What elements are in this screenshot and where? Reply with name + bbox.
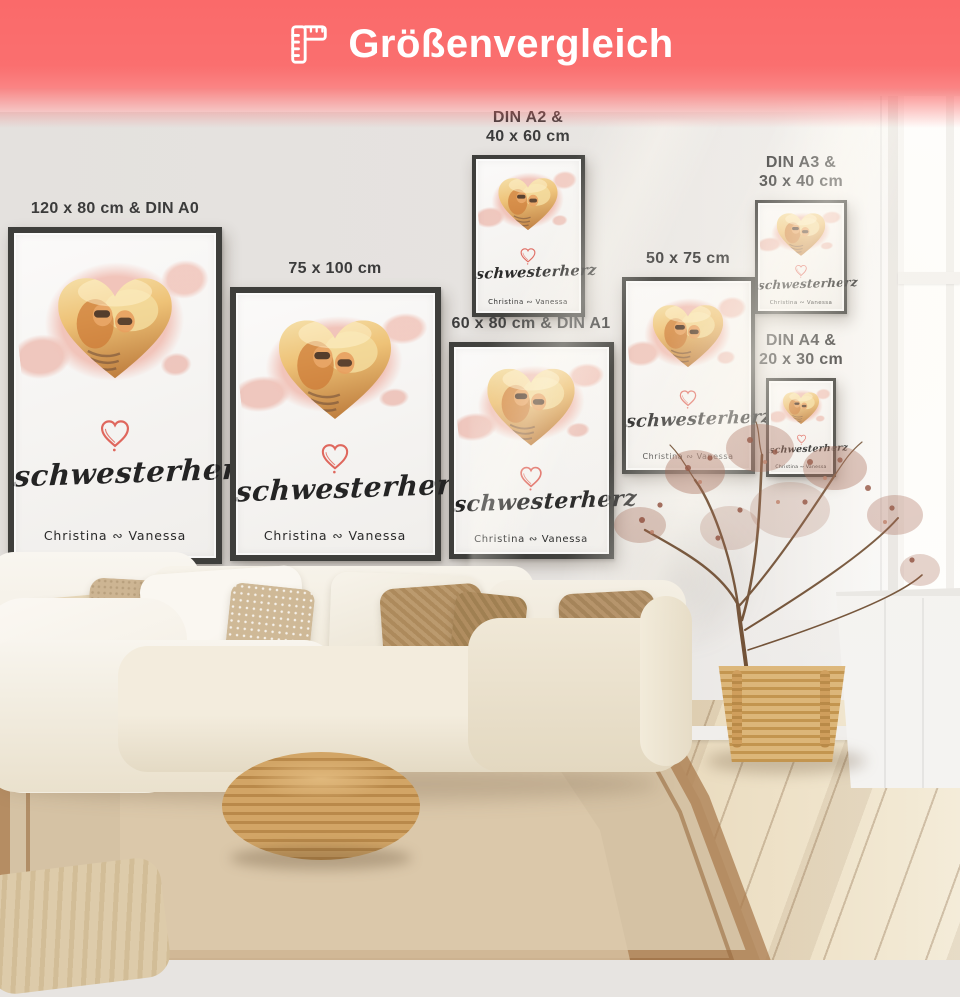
framed-poster: schwesterherz Christina ∾ Vanessa	[755, 200, 847, 314]
poster-group-din-a3: DIN A3 &30 x 40 cm	[746, 154, 856, 314]
heart-outline-icon	[626, 389, 751, 411]
room-photo: 120 x 80 cm & DIN A0	[0, 0, 960, 960]
poster-size-label: 60 x 80 cm & DIN A1	[452, 315, 611, 334]
framed-poster: schwesterherz Christina ∾ Vanessa	[230, 287, 441, 561]
poster-title-script: schwesterherz	[13, 452, 217, 493]
poster-size-label: 75 x 100 cm	[288, 260, 381, 279]
framed-poster: schwesterherz Christina ∾ Vanessa	[8, 227, 222, 564]
poster-photo-area	[762, 207, 839, 261]
heart-outline-icon	[14, 418, 216, 455]
poster-names: Christina ∾ Vanessa	[236, 528, 435, 543]
heart-photo	[274, 310, 396, 431]
ruler-icon	[286, 21, 332, 67]
poster-names: Christina ∾ Vanessa	[14, 528, 216, 543]
poster-names: Christina ∾ Vanessa	[758, 300, 844, 306]
poster-photo-area	[24, 246, 206, 409]
woven-pouf	[222, 752, 420, 860]
framed-poster: schwesterherz Christina ∾ Vanessa	[472, 155, 585, 317]
poster-group-din-a2: DIN A2 &40 x 60 cm	[458, 109, 598, 317]
heart-photo	[775, 210, 828, 260]
header-banner: Größenvergleich	[0, 0, 960, 88]
poster-title-script: schwesterherz	[234, 469, 435, 509]
heart-photo	[53, 254, 177, 404]
poster-size-label: DIN A4 &20 x 30 cm	[759, 332, 843, 370]
poster-size-label: 50 x 75 cm	[646, 250, 730, 269]
poster-title-script: schwesterherz	[453, 486, 610, 517]
poster-photo-area	[461, 355, 601, 459]
poster-photo-area	[632, 288, 745, 383]
heart-photo	[496, 169, 560, 240]
poster-size-label: DIN A2 &40 x 60 cm	[486, 109, 570, 147]
poster-names: Christina ∾ Vanessa	[454, 534, 609, 545]
poster-group-din-a1: 60 x 80 cm & DIN A1	[443, 315, 619, 559]
poster-title-script: schwesterherz	[758, 275, 845, 292]
poster-photo-area	[245, 303, 424, 434]
floor-blanket	[0, 855, 173, 996]
poster-names: Christina ∾ Vanessa	[476, 298, 581, 306]
plant-basket	[716, 666, 848, 762]
poster-title-script: schwesterherz	[475, 262, 581, 283]
poster-size-label: DIN A3 &30 x 40 cm	[759, 154, 843, 192]
heart-photo	[650, 293, 727, 380]
heart-photo	[484, 360, 579, 455]
poster-group-size-75x100: 75 x 100 cm	[226, 260, 444, 561]
poster-group-din-a0: 120 x 80 cm & DIN A0	[3, 200, 227, 564]
dried-plant	[600, 410, 940, 710]
poster-photo-area	[481, 165, 576, 242]
poster-size-label: 120 x 80 cm & DIN A0	[31, 200, 199, 219]
framed-poster: schwesterherz Christina ∾ Vanessa	[449, 342, 614, 559]
page-title: Größenvergleich	[348, 22, 673, 67]
